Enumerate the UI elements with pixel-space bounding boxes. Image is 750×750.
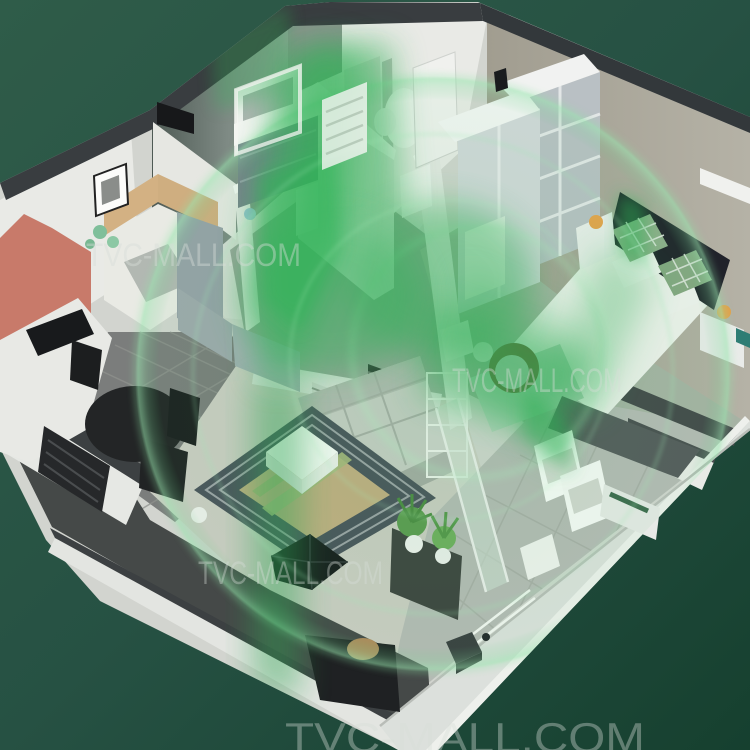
- svg-text:TVC-MALL.COM: TVC-MALL.COM: [452, 362, 622, 400]
- svg-text:TVC-MALL.COM: TVC-MALL.COM: [86, 237, 301, 273]
- svg-text:TVC-MALL.COM: TVC-MALL.COM: [285, 714, 645, 750]
- svg-text:TVC-MALL.COM: TVC-MALL.COM: [198, 555, 383, 591]
